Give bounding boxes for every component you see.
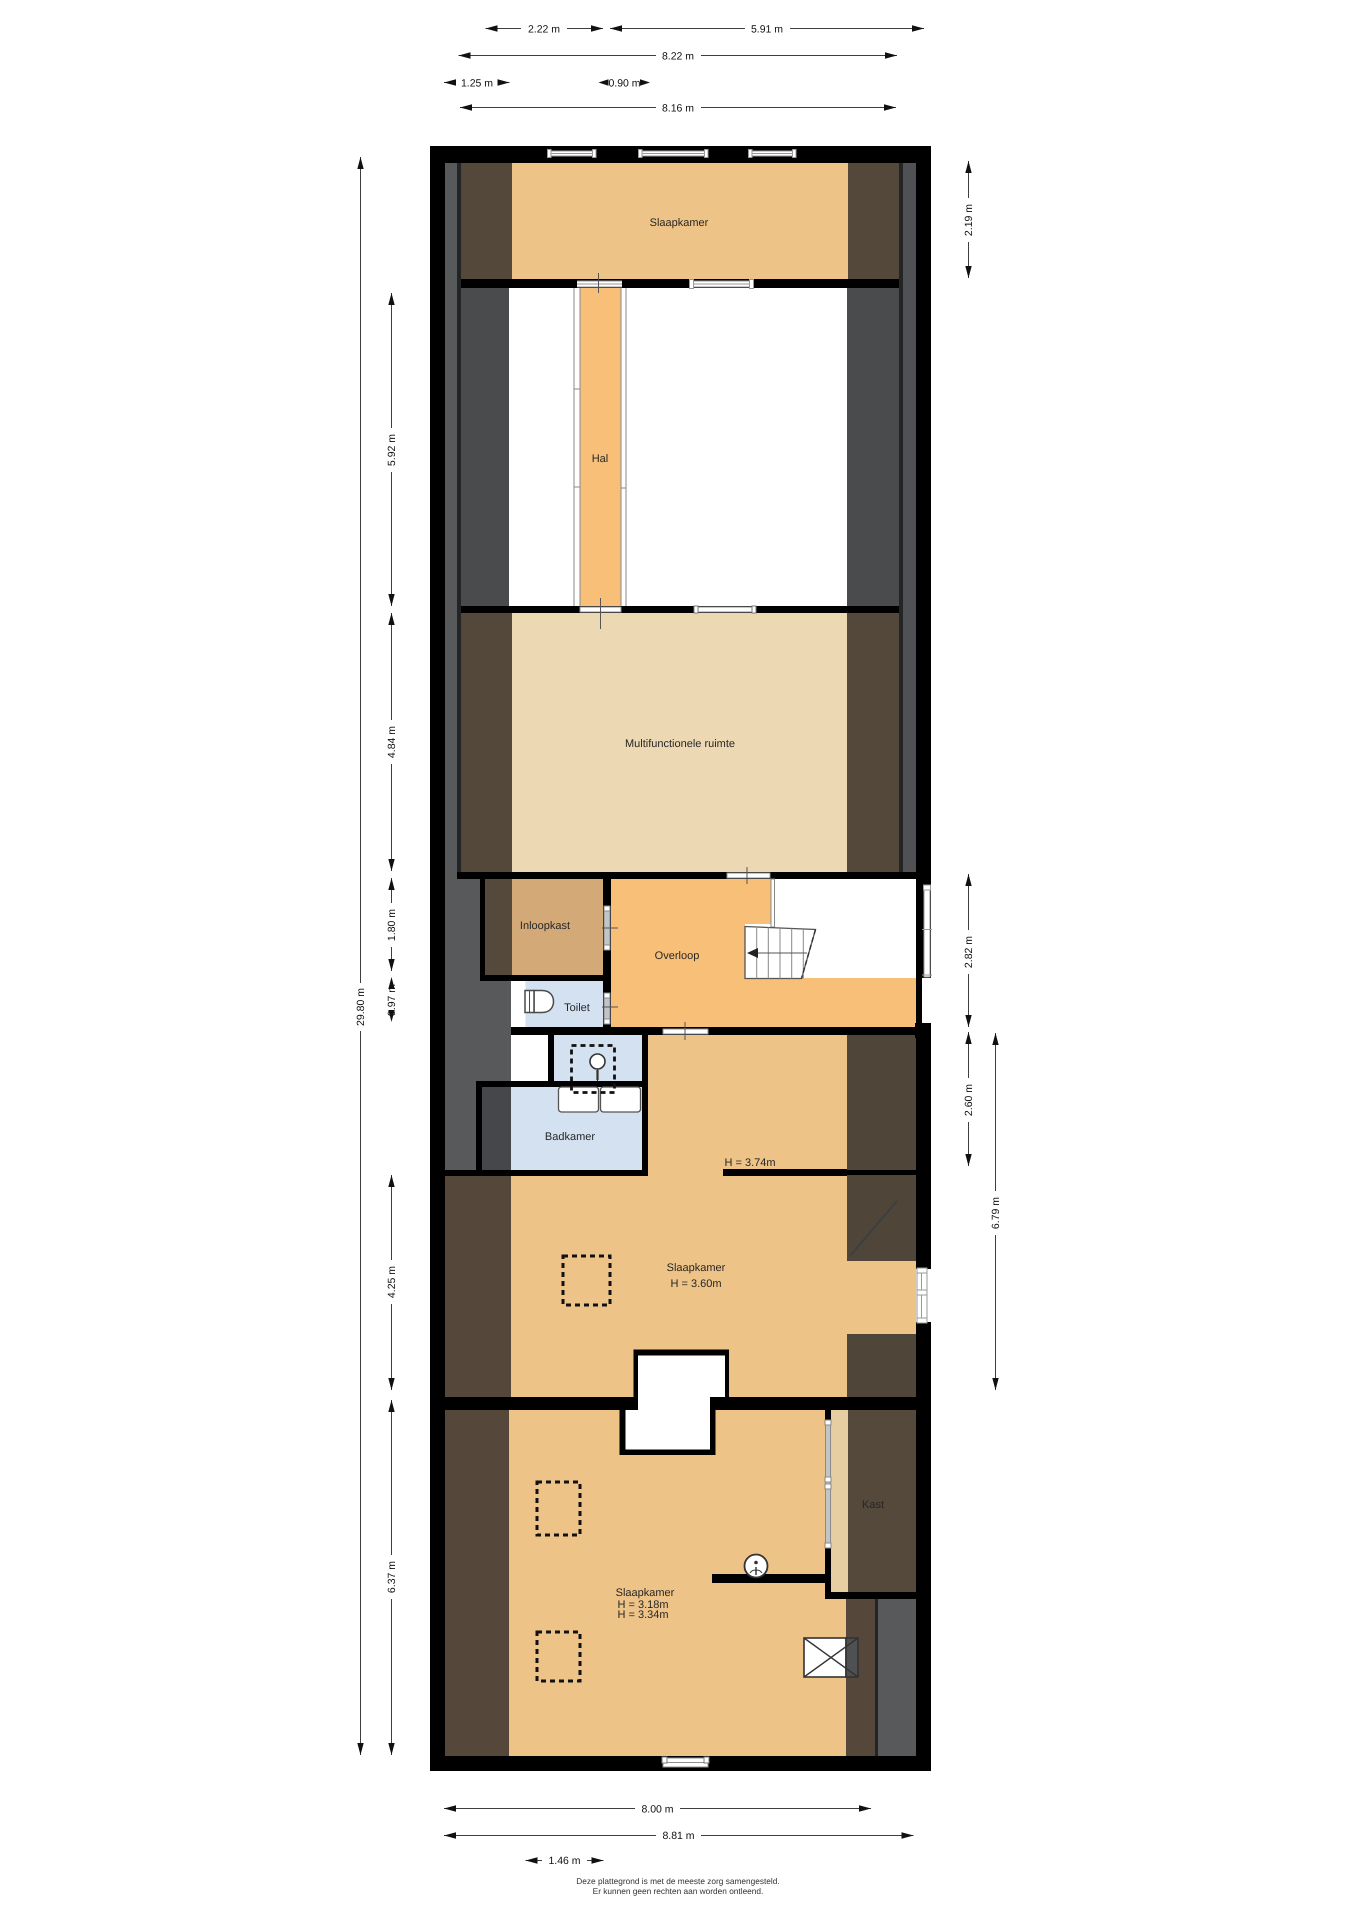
svg-text:Slaapkamer: Slaapkamer xyxy=(616,1587,675,1599)
svg-text:8.16 m: 8.16 m xyxy=(662,103,694,115)
svg-text:Overloop: Overloop xyxy=(655,950,700,962)
svg-text:1.25 m: 1.25 m xyxy=(461,78,493,90)
svg-text:Kast: Kast xyxy=(862,1499,884,1511)
svg-text:Slaapkamer: Slaapkamer xyxy=(650,217,709,229)
svg-text:2.22 m: 2.22 m xyxy=(528,24,560,36)
svg-text:5.91 m: 5.91 m xyxy=(751,24,783,36)
svg-text:1.80 m: 1.80 m xyxy=(386,909,398,941)
svg-text:Badkamer: Badkamer xyxy=(545,1131,595,1143)
svg-text:29.80 m: 29.80 m xyxy=(355,988,367,1026)
svg-text:H = 3.74m: H = 3.74m xyxy=(724,1157,775,1169)
svg-text:Slaapkamer: Slaapkamer xyxy=(667,1262,726,1274)
svg-text:8.00 m: 8.00 m xyxy=(641,1804,673,1816)
svg-text:6.79 m: 6.79 m xyxy=(990,1197,1002,1229)
svg-text:0.90 m: 0.90 m xyxy=(608,78,640,90)
svg-text:4.25 m: 4.25 m xyxy=(386,1266,398,1298)
svg-text:8.22 m: 8.22 m xyxy=(662,51,694,63)
svg-text:5.92 m: 5.92 m xyxy=(386,434,398,466)
svg-text:Inloopkast: Inloopkast xyxy=(520,920,570,932)
svg-text:2.19 m: 2.19 m xyxy=(963,204,975,236)
svg-text:Deze plattegrond is met de mee: Deze plattegrond is met de meeste zorg s… xyxy=(576,1876,779,1886)
svg-text:H = 3.60m: H = 3.60m xyxy=(670,1278,721,1290)
svg-text:1.46 m: 1.46 m xyxy=(548,1855,580,1867)
svg-text:Er kunnen geen rechten aan wor: Er kunnen geen rechten aan worden ontlee… xyxy=(593,1886,764,1896)
svg-text:8.81 m: 8.81 m xyxy=(662,1830,694,1842)
svg-text:2.82 m: 2.82 m xyxy=(963,936,975,968)
svg-text:Toilet: Toilet xyxy=(564,1002,590,1014)
svg-text:0.97 m: 0.97 m xyxy=(386,984,398,1016)
svg-text:2.60 m: 2.60 m xyxy=(963,1084,975,1116)
svg-text:Hal: Hal xyxy=(592,453,609,465)
svg-text:H = 3.34m: H = 3.34m xyxy=(617,1609,668,1621)
svg-text:Multifunctionele ruimte: Multifunctionele ruimte xyxy=(625,738,735,750)
svg-text:6.37 m: 6.37 m xyxy=(386,1561,398,1593)
svg-text:4.84 m: 4.84 m xyxy=(386,726,398,758)
